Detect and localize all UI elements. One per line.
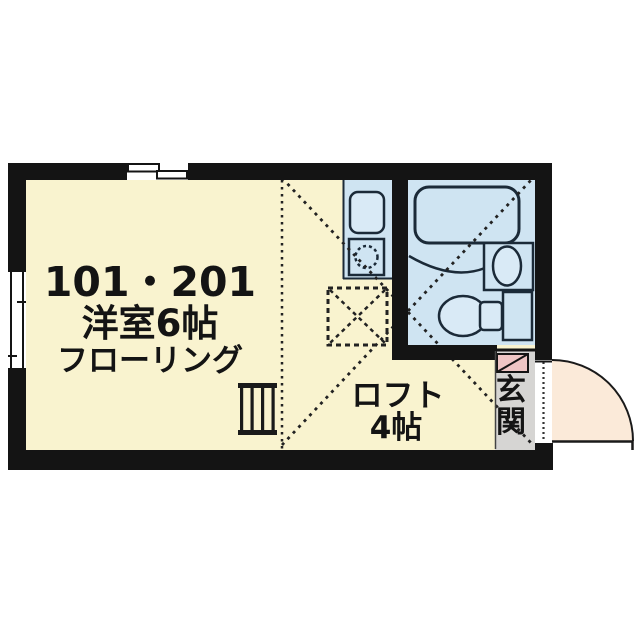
entrance-label: 玄 関: [496, 373, 526, 440]
wall-right-upper: [535, 163, 552, 360]
kitchen-sink: [350, 192, 384, 233]
toilet-seat: [480, 302, 502, 330]
unit-numbers-label: 101・201: [44, 258, 256, 306]
window-left: [8, 272, 26, 368]
room-label: 洋室6帖: [82, 302, 219, 345]
loft-size-label: 4帖: [370, 410, 423, 446]
bathtub: [415, 187, 519, 243]
entrance-label-char2: 関: [496, 405, 526, 440]
entrance-label-char1: 玄: [496, 373, 526, 408]
wall-kitchen-bath-divider: [392, 163, 408, 360]
loft-label: ロフト: [352, 378, 445, 414]
wall-bathroom-bottom: [392, 345, 497, 360]
toilet-tank: [503, 292, 532, 340]
shoe-cabinet: [497, 354, 528, 372]
washbasin: [484, 243, 533, 290]
gas-stove: [349, 239, 384, 275]
door-swing-area: [552, 360, 633, 441]
floor-plan-svg: 101・201 洋室6帖 フローリング ロフト 4帖 玄 関: [0, 0, 640, 640]
flooring-label: フローリング: [57, 343, 243, 379]
floor-plan: 101・201 洋室6帖 フローリング ロフト 4帖 玄 関: [0, 0, 640, 640]
wall-bottom: [8, 450, 553, 470]
wall-top: [8, 163, 552, 180]
window-top: [127, 163, 188, 180]
